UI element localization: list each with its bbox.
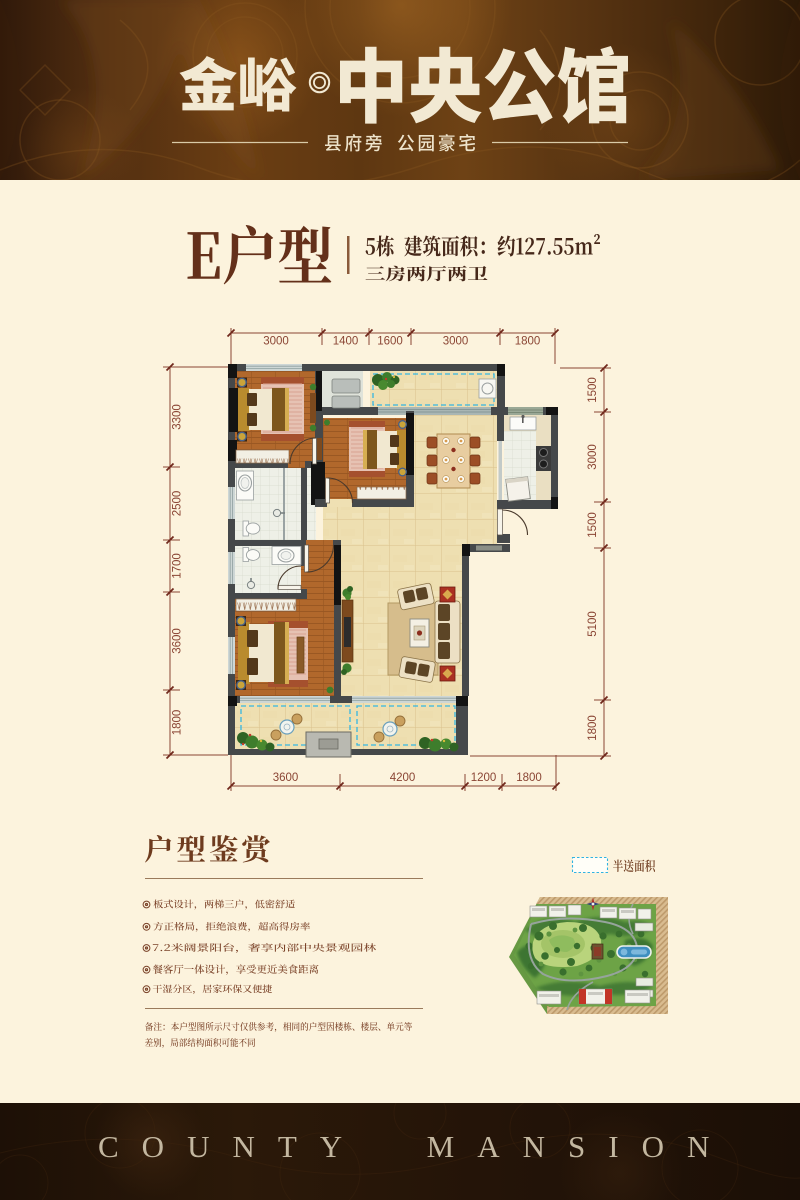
svg-text:2500: 2500 (172, 491, 184, 517)
svg-text:4200: 4200 (390, 772, 416, 784)
svg-text:3300: 3300 (172, 404, 184, 430)
svg-text:1800: 1800 (172, 710, 184, 736)
svg-text:1600: 1600 (377, 336, 403, 348)
svg-text:1700: 1700 (172, 553, 184, 579)
svg-text:1500: 1500 (587, 512, 599, 538)
svg-text:1200: 1200 (471, 772, 497, 784)
svg-text:3000: 3000 (443, 336, 469, 348)
svg-text:3000: 3000 (263, 336, 289, 348)
svg-text:5100: 5100 (587, 611, 599, 637)
svg-text:3600: 3600 (172, 628, 184, 654)
svg-text:1800: 1800 (516, 772, 542, 784)
svg-text:3000: 3000 (587, 444, 599, 470)
svg-text:3600: 3600 (273, 772, 299, 784)
svg-text:1400: 1400 (333, 336, 359, 348)
svg-text:1500: 1500 (587, 377, 599, 403)
svg-text:1800: 1800 (515, 336, 541, 348)
svg-text:1800: 1800 (587, 715, 599, 741)
